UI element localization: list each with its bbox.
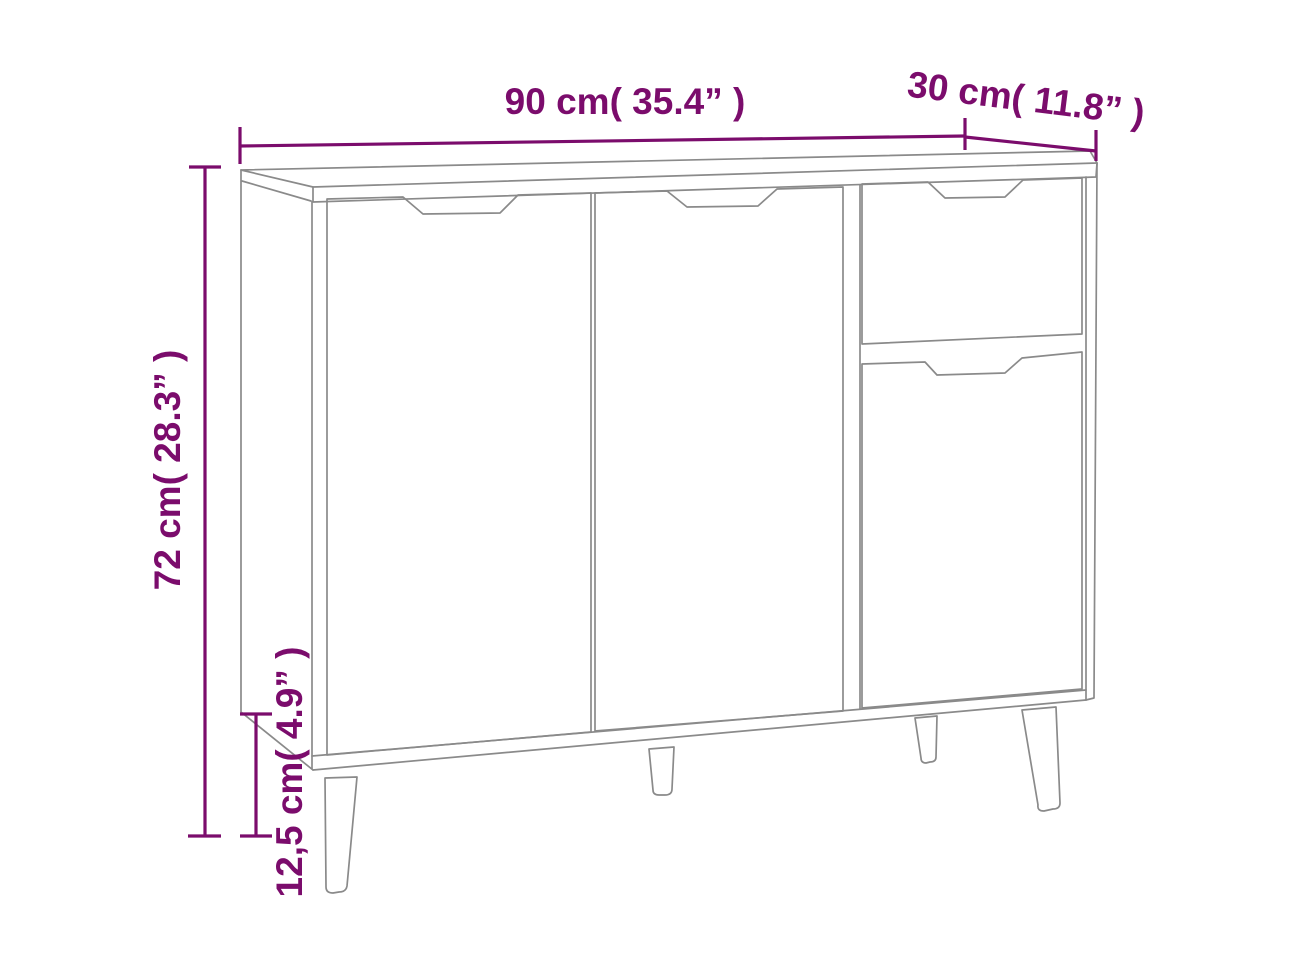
cabinet-outer-right-edge: [1086, 163, 1097, 700]
diagram-canvas: 90 cm( 35.4” ) 30 cm( 11.8” ) 72 cm( 28.…: [0, 0, 1297, 972]
dimension-height: 72 cm( 28.3” ): [147, 167, 221, 836]
dimension-annotations: 90 cm( 35.4” ) 30 cm( 11.8” ) 72 cm( 28.…: [147, 64, 1147, 898]
leg-front-left: [325, 777, 357, 893]
leg-front-right: [1022, 707, 1060, 811]
cabinet-bottom-rail-bottom: [313, 700, 1086, 770]
dimension-height-label: 72 cm( 28.3” ): [147, 350, 188, 591]
door-bottom-right: [862, 352, 1082, 708]
dimension-depth-label: 30 cm( 11.8” ): [905, 64, 1147, 134]
dimension-depth: 30 cm( 11.8” ): [905, 64, 1147, 161]
dimension-leg-height: 12,5 cm( 4.9” ): [240, 647, 310, 898]
dimension-depth-line: [965, 137, 1096, 151]
drawer-front: [862, 178, 1082, 344]
leg-back-right: [915, 716, 937, 763]
dimension-width-label: 90 cm( 35.4” ): [505, 81, 746, 122]
dimension-width: 90 cm( 35.4” ): [240, 81, 965, 164]
cabinet-top-front-strip: [313, 163, 1097, 202]
leg-back-middle: [649, 747, 674, 795]
sideboard-dimension-diagram: 90 cm( 35.4” ) 30 cm( 11.8” ) 72 cm( 28.…: [0, 0, 1297, 972]
door-left: [327, 193, 591, 755]
dimension-leg-height-label: 12,5 cm( 4.9” ): [269, 647, 310, 898]
sideboard-drawing: [241, 151, 1097, 893]
door-middle: [595, 187, 843, 731]
dimension-width-line: [240, 136, 965, 146]
